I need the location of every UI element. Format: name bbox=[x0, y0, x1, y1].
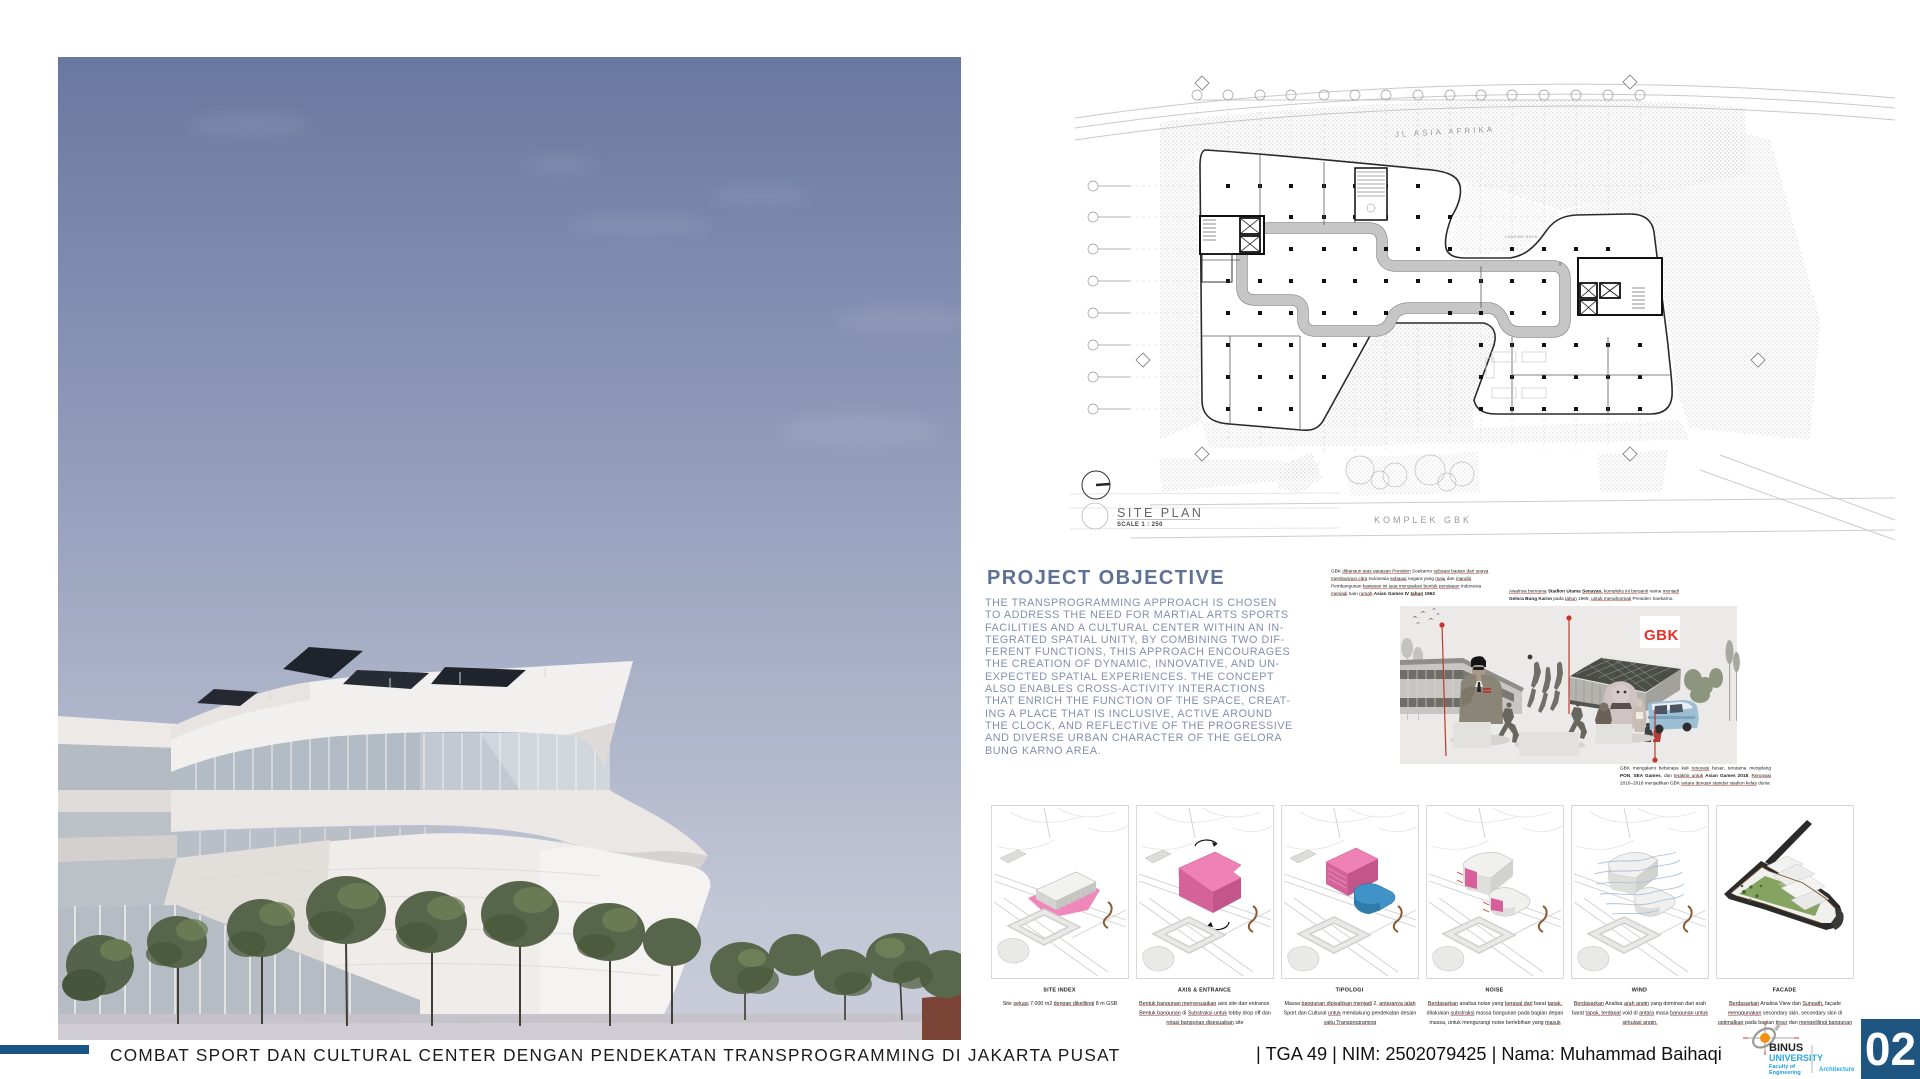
svg-text:GBK: GBK bbox=[1644, 627, 1679, 644]
svg-text:KOMPLEK GBK: KOMPLEK GBK bbox=[1374, 515, 1472, 525]
svg-text:SCALE 1 : 250: SCALE 1 : 250 bbox=[1117, 522, 1163, 528]
svg-text:UNIVERSITY: UNIVERSITY bbox=[1769, 1053, 1823, 1063]
svg-text:SITE PLAN: SITE PLAN bbox=[1117, 506, 1203, 520]
svg-text:Architecture: Architecture bbox=[1819, 1067, 1855, 1073]
svg-text:Engineering: Engineering bbox=[1769, 1070, 1801, 1076]
svg-text:LOADING DOCK: LOADING DOCK bbox=[1505, 235, 1538, 239]
